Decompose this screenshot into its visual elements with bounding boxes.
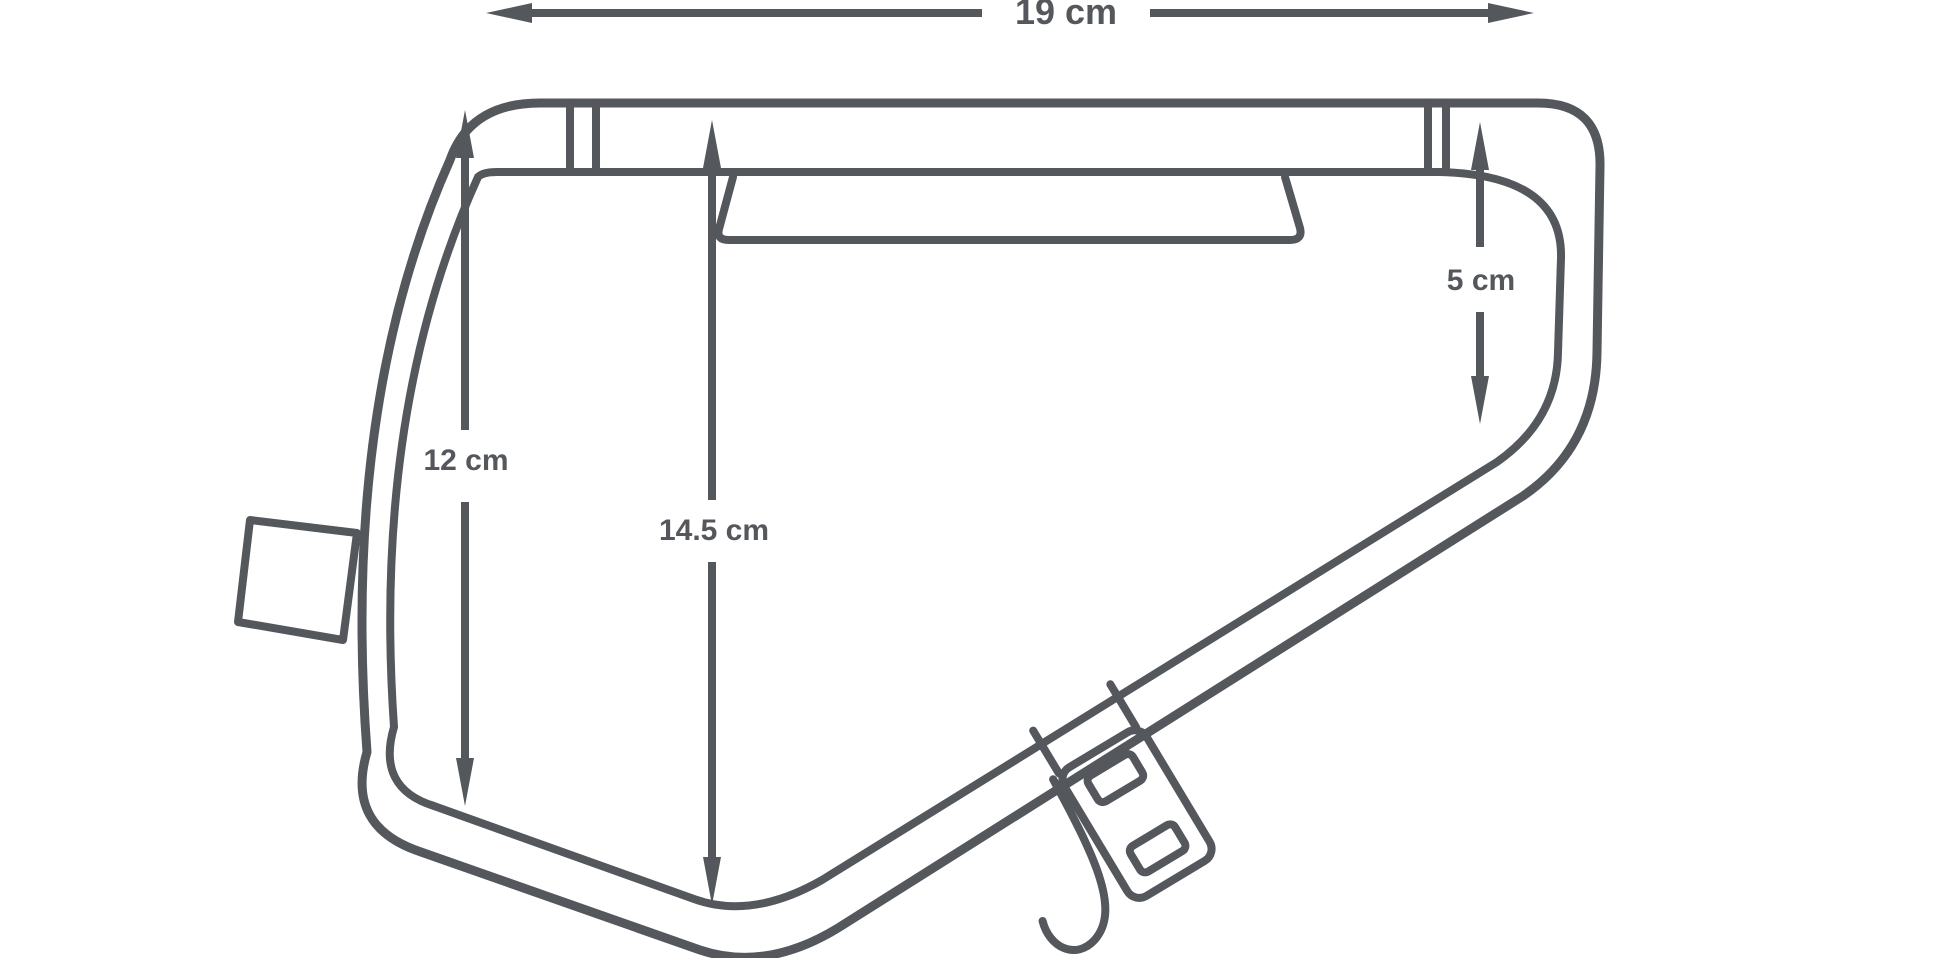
side-strap-tab [238, 520, 357, 640]
dimension-label-right-height: 5 cm [1447, 264, 1515, 297]
dimension-label-top-width: 19 cm [1015, 0, 1117, 32]
dimension-top-width: 19 cm [486, 0, 1534, 32]
bag-inner-outline [390, 172, 1561, 906]
buckle-slot-top [1085, 752, 1145, 804]
dimension-label-center-height: 14.5 cm [659, 514, 769, 547]
dimension-right-height: 5 cm [1447, 122, 1515, 424]
bottom-strap-assembly [954, 682, 1223, 958]
arrowhead-down-icon [1471, 376, 1489, 424]
frame-bag-diagram: 19 cm 12 cm 14.5 cm 5 cm [0, 0, 1946, 958]
arrowhead-down-icon [456, 758, 474, 806]
frame-bag [238, 103, 1600, 958]
arrowhead-up-icon [703, 120, 721, 168]
dimension-label-left-height: 12 cm [423, 444, 508, 477]
buckle-slot-bottom [1128, 822, 1188, 874]
bag-outer-outline [362, 103, 1600, 957]
arrowhead-left-icon [486, 3, 532, 23]
diagram-canvas: 19 cm 12 cm 14.5 cm 5 cm [0, 0, 1946, 958]
zipper-flap [718, 177, 1300, 240]
arrowhead-right-icon [1488, 3, 1534, 23]
top-strap-panel [570, 105, 1446, 170]
arrowhead-up-icon [1471, 122, 1489, 170]
dimension-left-height: 12 cm [423, 110, 508, 806]
buckle-frame [1057, 725, 1217, 903]
arrowhead-down-icon [703, 857, 721, 905]
